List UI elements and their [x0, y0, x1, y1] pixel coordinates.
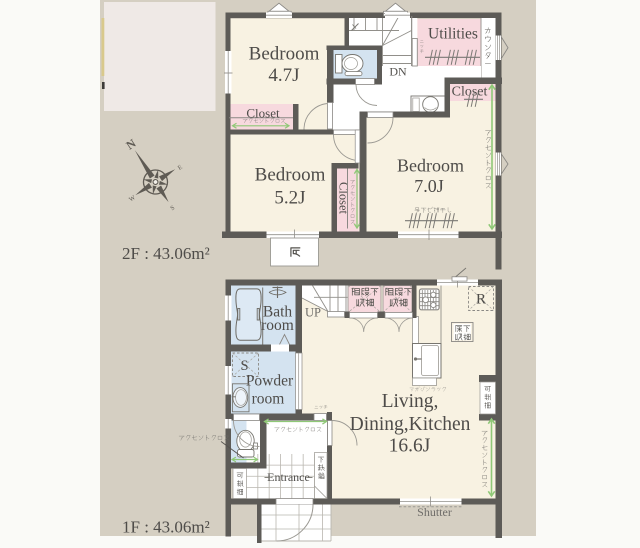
svg-text:Utilities: Utilities — [428, 26, 478, 43]
svg-text:Dining,Kitchen: Dining,Kitchen — [350, 414, 471, 435]
svg-text:Closet: Closet — [337, 182, 351, 214]
svg-text:UP: UP — [305, 306, 321, 320]
svg-text:Living,: Living, — [382, 391, 439, 412]
svg-text:7.0J: 7.0J — [414, 176, 444, 196]
svg-text:1F : 43.06m²: 1F : 43.06m² — [122, 518, 210, 537]
svg-text:Bedroom: Bedroom — [249, 44, 320, 65]
svg-text:Shutter: Shutter — [417, 505, 452, 519]
svg-text:4.7J: 4.7J — [268, 65, 299, 86]
svg-text:2F : 43.06m²: 2F : 43.06m² — [122, 244, 210, 263]
svg-text:5.2J: 5.2J — [274, 188, 305, 209]
svg-text:Powder: Powder — [246, 373, 294, 390]
svg-text:Closet: Closet — [246, 106, 280, 121]
svg-text:Entrance: Entrance — [267, 470, 310, 484]
svg-text:DN: DN — [389, 65, 407, 79]
svg-text:R: R — [476, 292, 486, 308]
svg-text:Bedroom: Bedroom — [255, 165, 326, 186]
svg-text:room: room — [252, 391, 285, 408]
svg-text:16.6J: 16.6J — [389, 436, 431, 457]
svg-text:room: room — [261, 317, 294, 334]
svg-text:Bedroom: Bedroom — [397, 156, 464, 176]
